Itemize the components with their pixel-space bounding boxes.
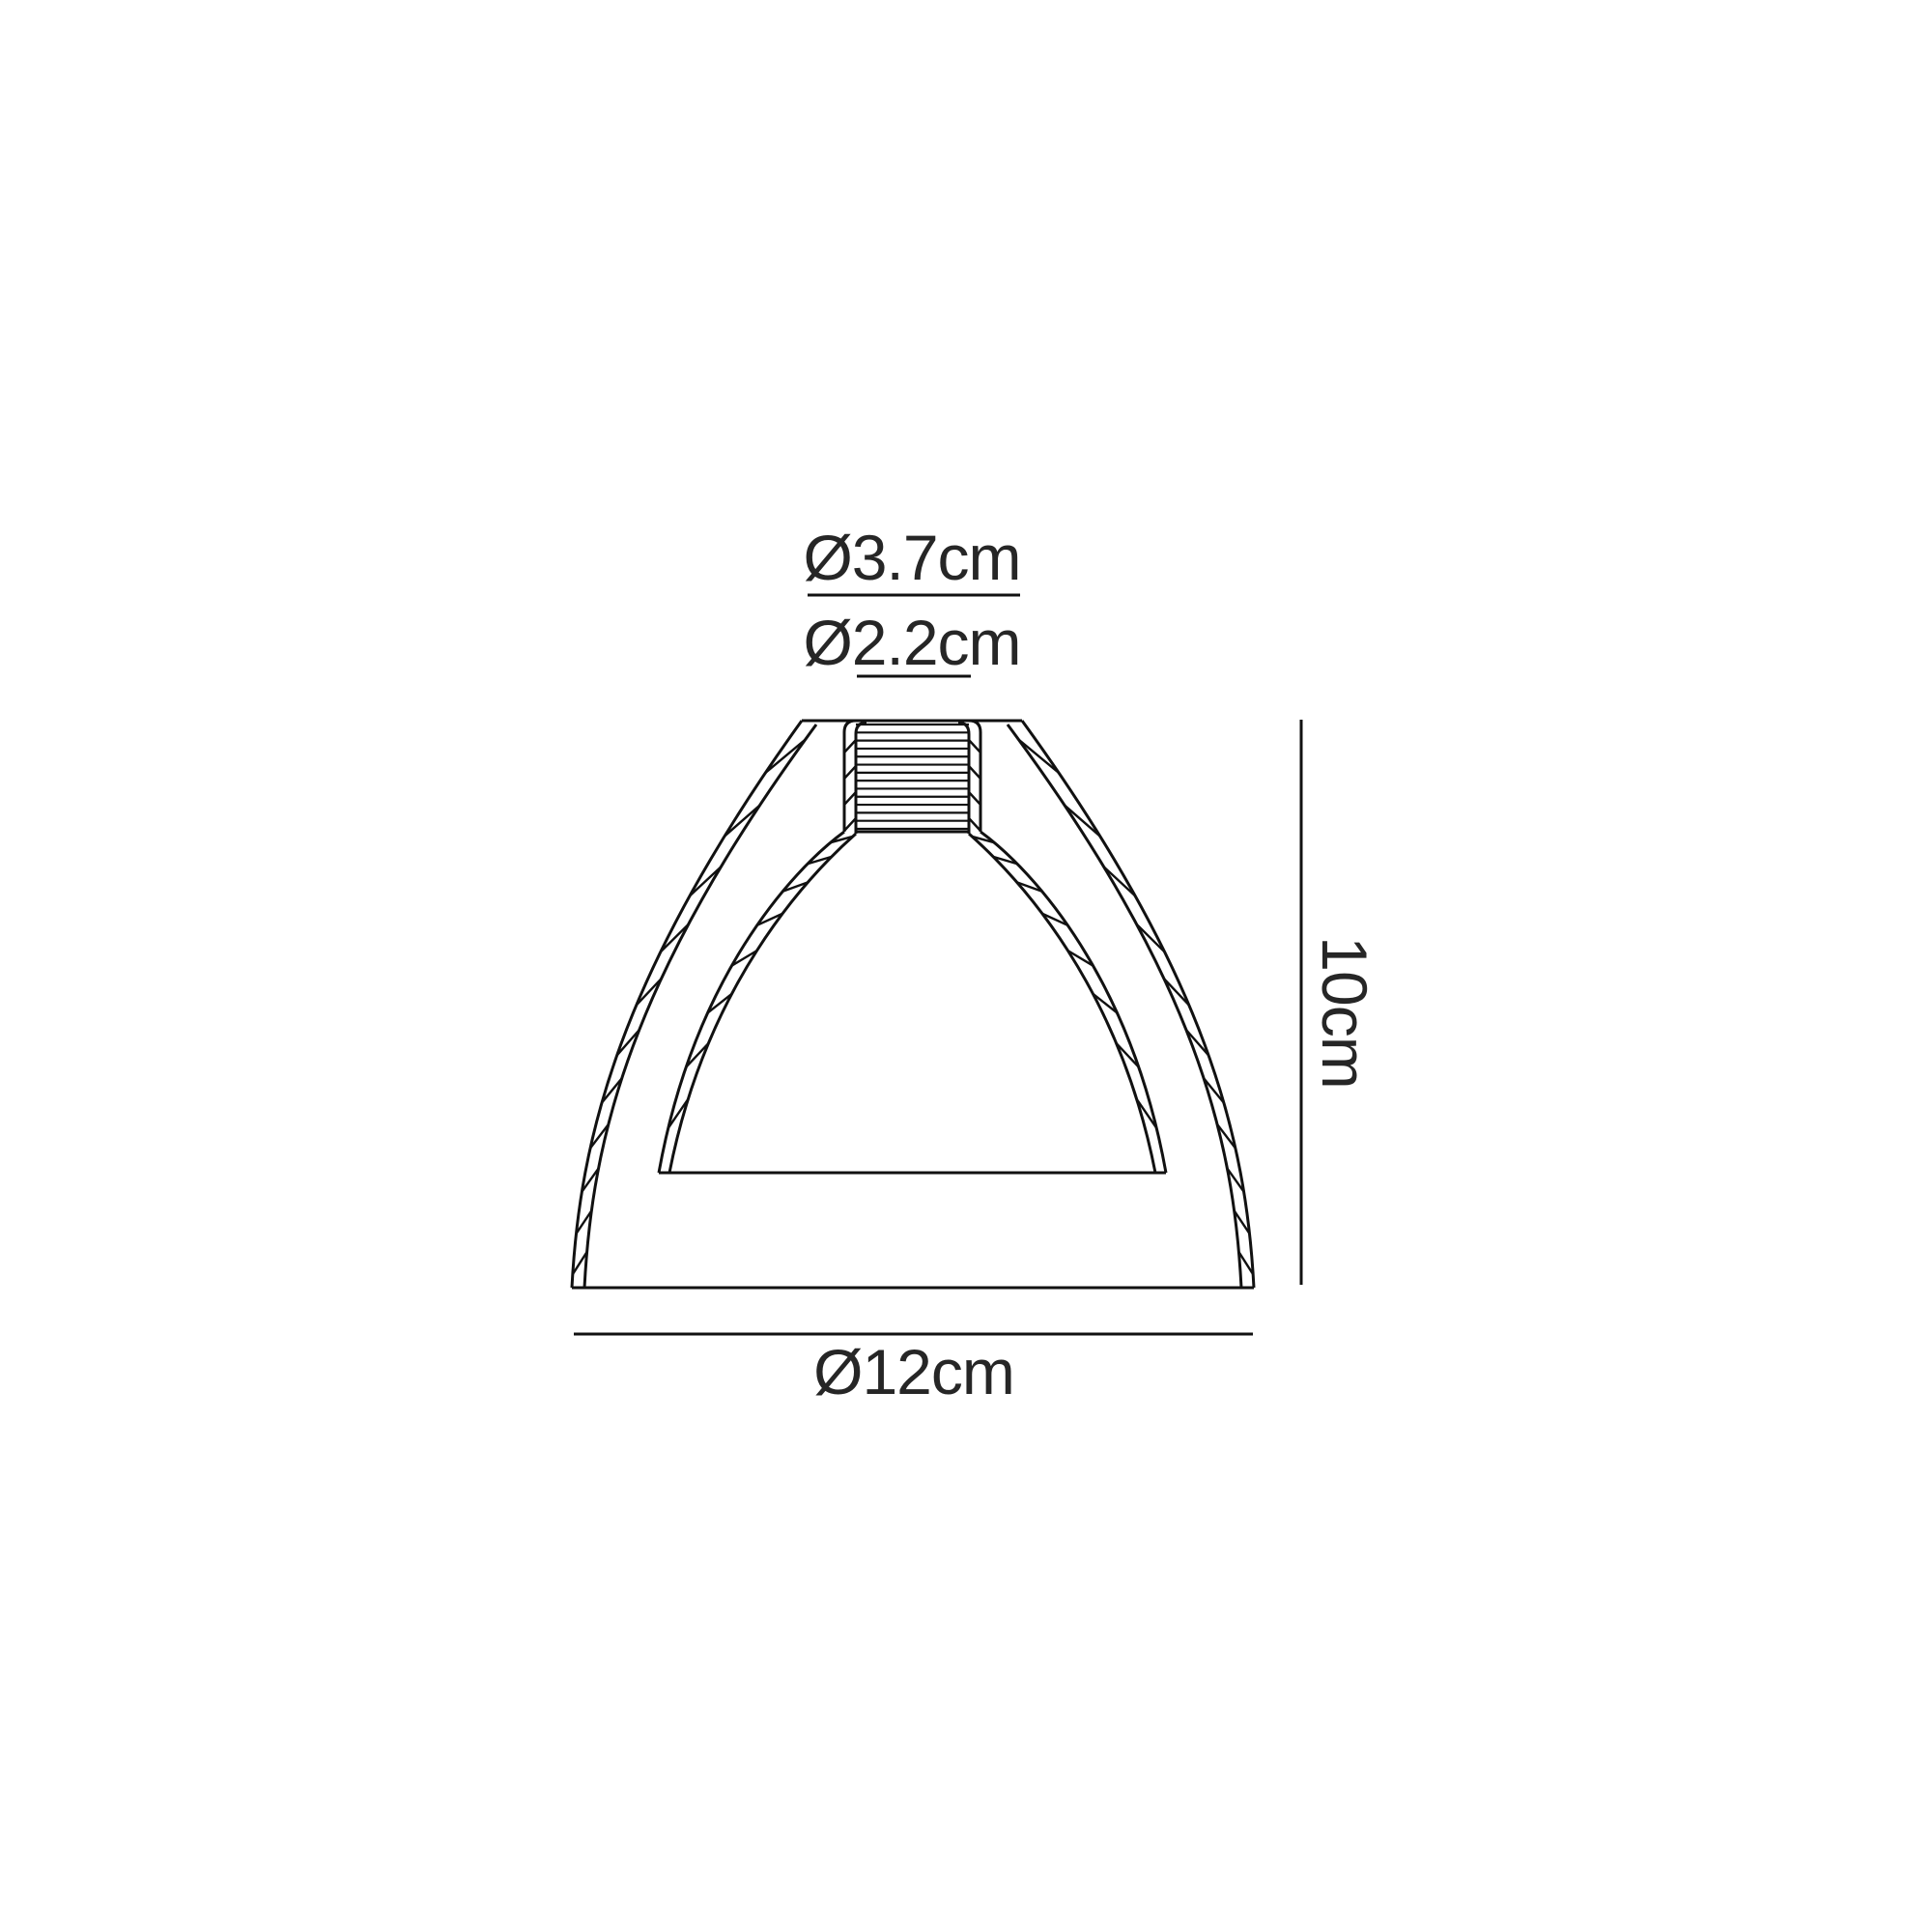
lampshade-technical-drawing: Ø3.7cm Ø2.2cm 10cm Ø12cm [0, 0, 1932, 1932]
neck-wall-left-inner-edge [856, 723, 867, 834]
label-neck-diameter: Ø2.2cm [803, 611, 1020, 674]
hatch-tick [844, 766, 856, 779]
label-bottom-diameter: Ø12cm [813, 1340, 1014, 1404]
hatch-tick [661, 924, 689, 952]
hatch-tick [1137, 924, 1165, 952]
hatch-tick [637, 979, 662, 1005]
dimension-lines [574, 595, 1301, 1334]
outer-wall-right-inner-edge [1008, 724, 1241, 1288]
inner-wall-left-outer-edge [659, 832, 844, 1173]
neck-wall-right-inner-edge [958, 723, 969, 834]
outer-wall-left-inner-edge [584, 724, 816, 1288]
outer-wall-right-outer-edge [1022, 721, 1254, 1288]
hatch-tick [844, 792, 856, 805]
hatch-tick [844, 818, 856, 831]
hatch-tick [844, 740, 856, 753]
hatch-tick [969, 818, 980, 831]
label-top-diameter: Ø3.7cm [803, 526, 1020, 589]
outer-wall-left-outer-edge [572, 721, 802, 1288]
hatch-tick [969, 792, 980, 805]
hatch-tick [969, 766, 980, 779]
hatch-tick [1164, 979, 1189, 1005]
drawing-svg [0, 0, 1932, 1932]
neck-thread-lines [856, 724, 969, 829]
hatch-tick [969, 740, 980, 753]
label-height: 10cm [1313, 936, 1377, 1088]
inner-wall-right-outer-edge [980, 832, 1166, 1173]
